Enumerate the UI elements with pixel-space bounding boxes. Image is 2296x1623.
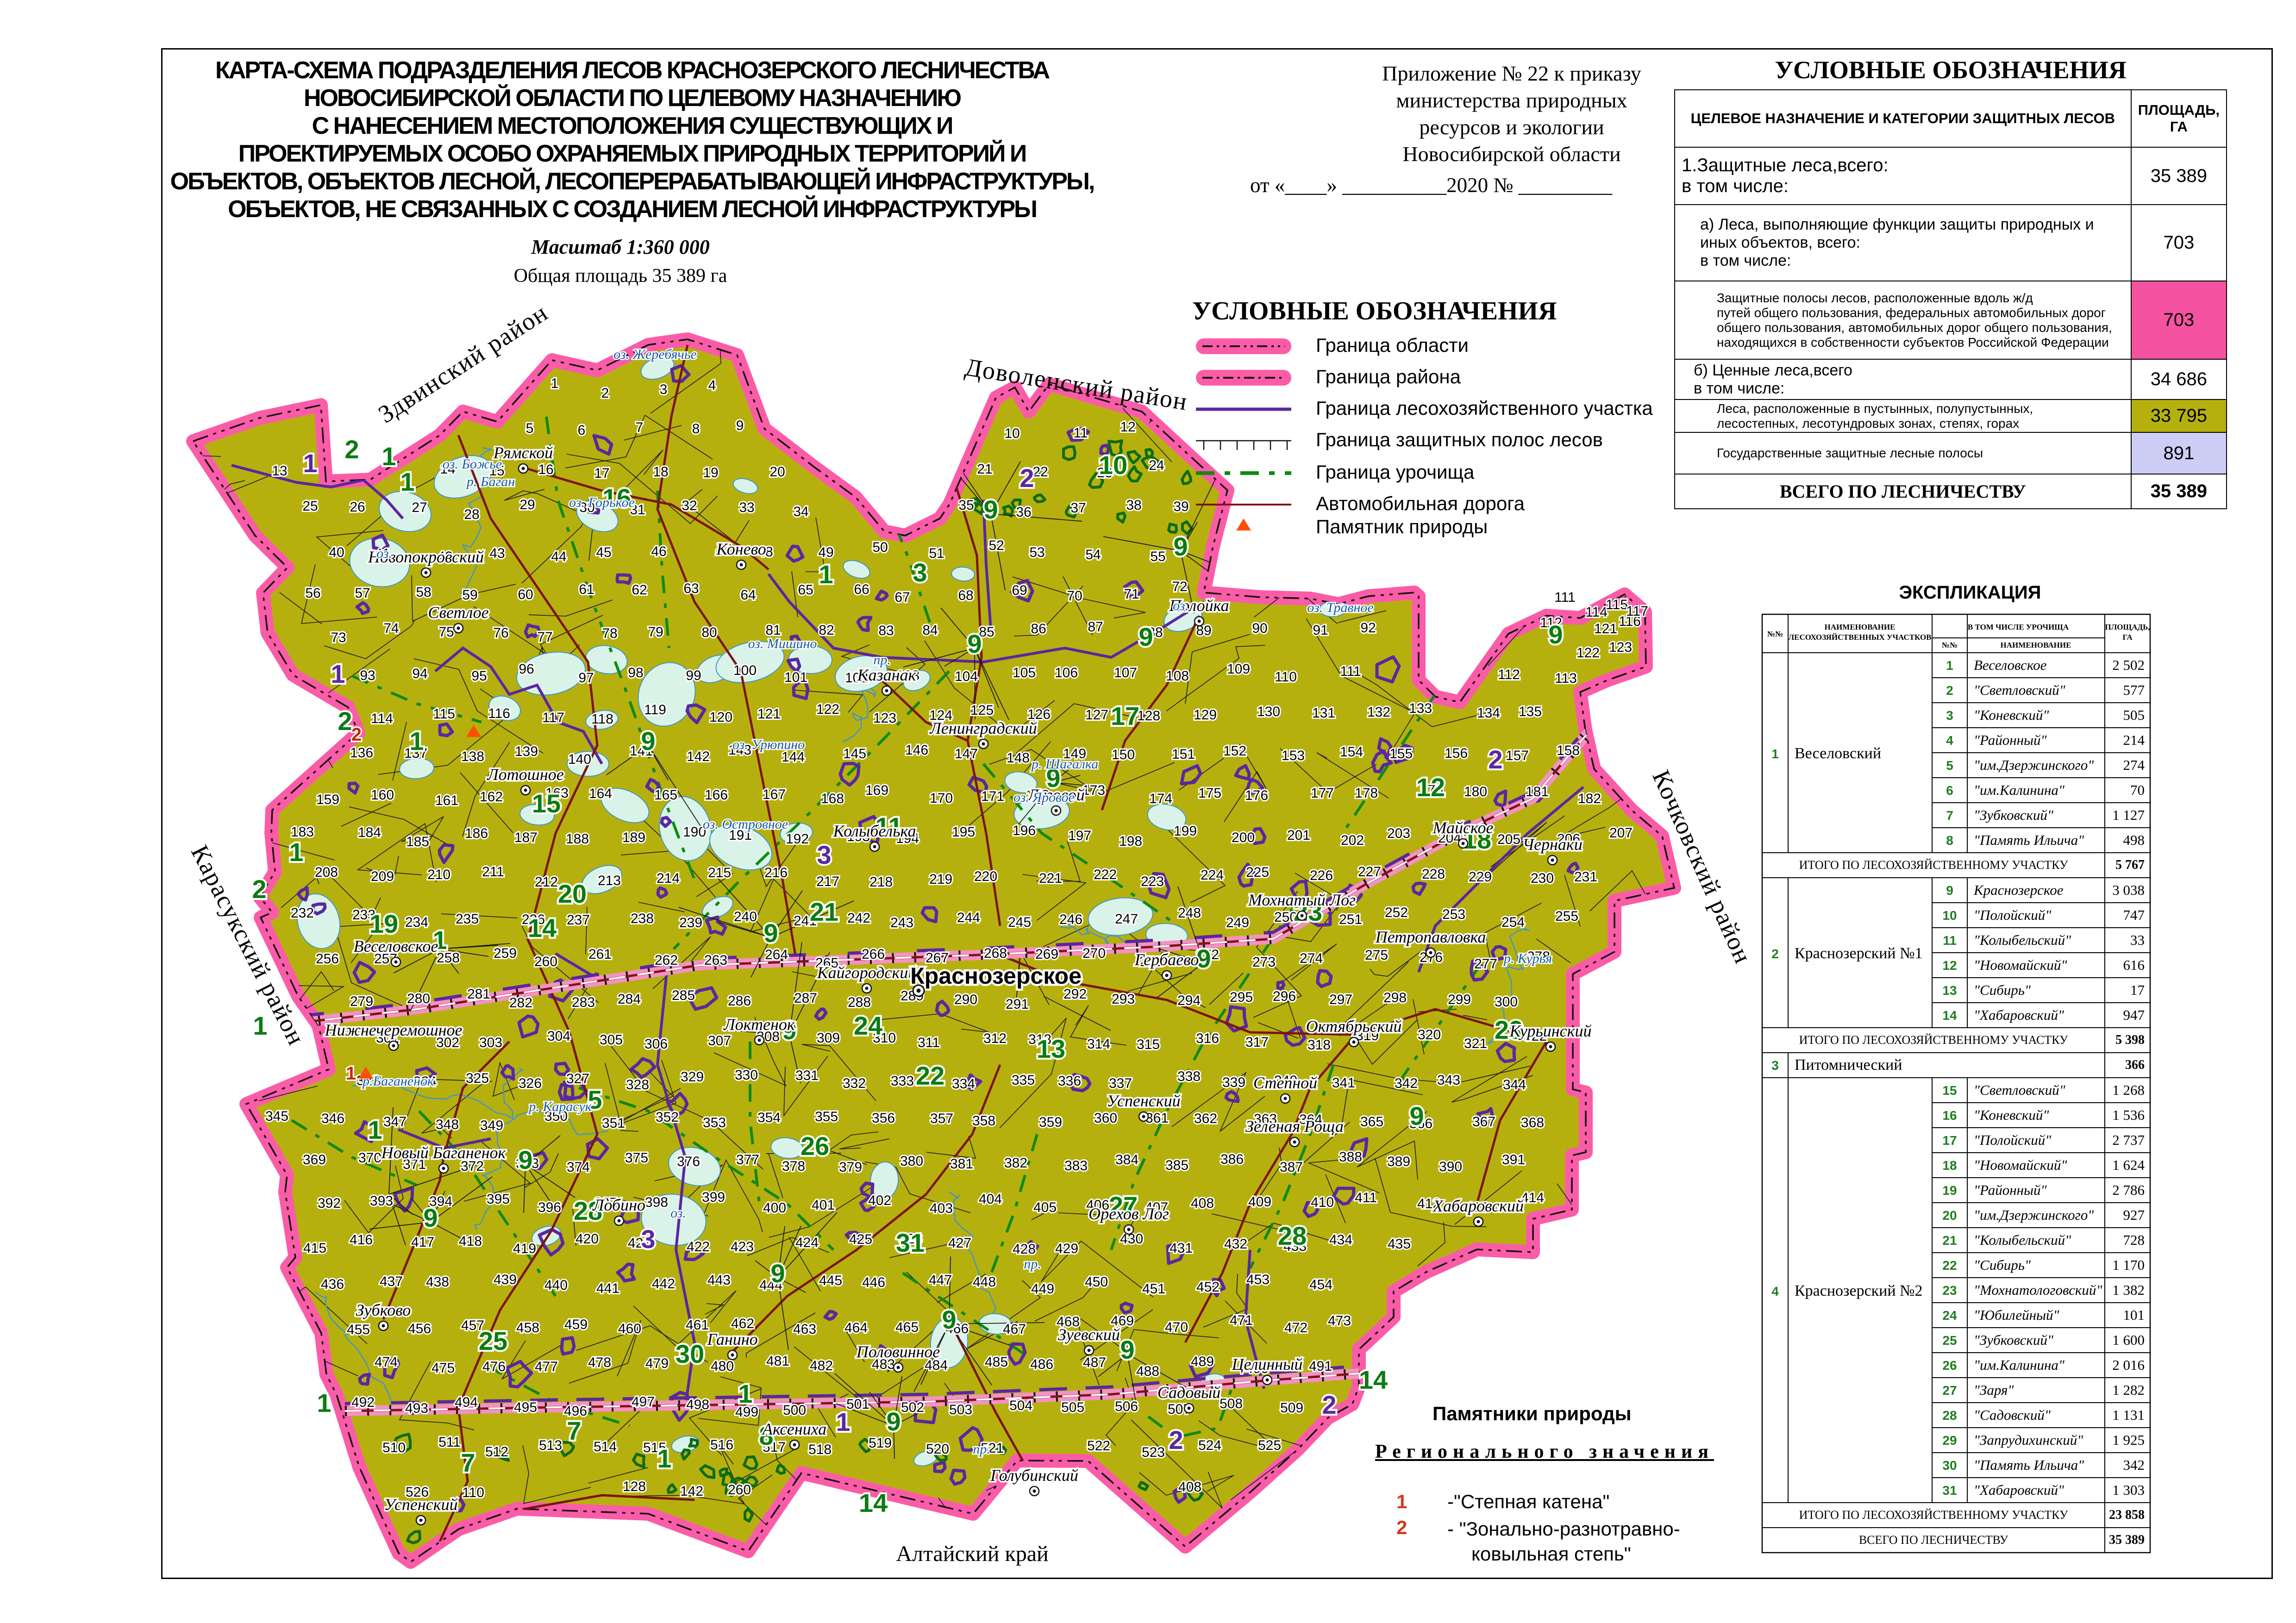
- svg-text:577: 577: [2123, 682, 2145, 698]
- svg-text:"Светловский": "Светловский": [1974, 682, 2066, 698]
- svg-text:"Светловский": "Светловский": [1974, 1082, 2066, 1098]
- svg-text:616: 616: [2123, 957, 2145, 973]
- svg-text:21: 21: [1942, 1233, 1957, 1248]
- svg-text:1 536: 1 536: [2112, 1107, 2145, 1123]
- svg-text:2: 2: [1771, 947, 1779, 961]
- svg-text:"Запрудихинский": "Запрудихинский": [1974, 1432, 2083, 1448]
- svg-text:"Зубковский": "Зубковский": [1974, 1332, 2054, 1348]
- svg-text:1: 1: [1946, 658, 1953, 673]
- svg-text:214: 214: [2123, 732, 2145, 748]
- svg-text:№№: №№: [1767, 630, 1783, 638]
- svg-text:2 502: 2 502: [2112, 657, 2145, 673]
- svg-text:1 127: 1 127: [2112, 807, 2145, 823]
- svg-text:30: 30: [1942, 1458, 1957, 1473]
- svg-text:"Новомайский": "Новомайский": [1974, 957, 2067, 973]
- svg-text:"Зубковский": "Зубковский": [1974, 807, 2054, 823]
- svg-text:"Районный": "Районный": [1974, 732, 2047, 748]
- svg-text:2 786: 2 786: [2112, 1182, 2145, 1198]
- svg-text:ЛЕСОХОЗЯЙСТВЕННЫХ УЧАСТКОВ: ЛЕСОХОЗЯЙСТВЕННЫХ УЧАСТКОВ: [1788, 633, 1931, 642]
- svg-text:Питомнический: Питомнический: [1795, 1056, 1902, 1074]
- svg-text:"Полойский": "Полойский": [1974, 1132, 2052, 1148]
- svg-text:1 268: 1 268: [2112, 1082, 2145, 1098]
- svg-text:Краснозерское: Краснозерское: [1973, 882, 2064, 898]
- svg-text:27: 27: [1942, 1383, 1957, 1398]
- svg-text:"Садовский": "Садовский": [1974, 1407, 2051, 1423]
- svg-text:31: 31: [1942, 1483, 1957, 1498]
- svg-text:"Коневский": "Коневский": [1974, 707, 2049, 723]
- svg-text:15: 15: [1942, 1083, 1957, 1098]
- svg-text:342: 342: [2123, 1457, 2145, 1473]
- svg-text:"Хабаровский": "Хабаровский": [1974, 1007, 2065, 1023]
- svg-text:14: 14: [1942, 1008, 1957, 1023]
- svg-text:"Юбилейный": "Юбилейный": [1974, 1307, 2060, 1323]
- svg-text:"Колыбельский": "Колыбельский": [1974, 932, 2071, 948]
- svg-text:1: 1: [1771, 747, 1779, 761]
- svg-text:"Новомайский": "Новомайский": [1974, 1157, 2067, 1173]
- svg-text:24: 24: [1942, 1308, 1957, 1323]
- svg-text:101: 101: [2123, 1307, 2145, 1323]
- svg-text:29: 29: [1942, 1433, 1957, 1448]
- svg-text:"Колыбельский": "Колыбельский": [1974, 1232, 2071, 1248]
- svg-text:№№: №№: [1942, 641, 1958, 649]
- svg-text:2 737: 2 737: [2112, 1132, 2145, 1148]
- svg-text:16: 16: [1942, 1108, 1957, 1123]
- svg-text:7: 7: [1946, 808, 1953, 823]
- svg-text:ИТОГО ПО ЛЕСОХОЗЯЙСТВЕННОМУ УЧ: ИТОГО ПО ЛЕСОХОЗЯЙСТВЕННОМУ УЧАСТКУ: [1799, 1033, 2068, 1047]
- svg-text:35 389: 35 389: [2109, 1533, 2145, 1547]
- svg-text:20: 20: [1942, 1208, 1957, 1223]
- svg-text:12: 12: [1942, 958, 1957, 973]
- svg-text:Краснозерский №1: Краснозерский №1: [1795, 945, 1923, 962]
- svg-text:1 600: 1 600: [2112, 1332, 2145, 1348]
- svg-text:1 303: 1 303: [2112, 1482, 2145, 1498]
- svg-text:Краснозерский №2: Краснозерский №2: [1795, 1282, 1923, 1299]
- svg-text:947: 947: [2123, 1007, 2145, 1023]
- svg-text:"Районный": "Районный": [1974, 1182, 2047, 1198]
- svg-text:ГА: ГА: [2122, 633, 2133, 642]
- svg-text:ИТОГО ПО ЛЕСОХОЗЯЙСТВЕННОМУ УЧ: ИТОГО ПО ЛЕСОХОЗЯЙСТВЕННОМУ УЧАСТКУ: [1799, 1508, 2068, 1522]
- svg-text:28: 28: [1942, 1408, 1957, 1423]
- svg-text:11: 11: [1943, 933, 1957, 948]
- svg-text:"Коневский": "Коневский": [1974, 1107, 2049, 1123]
- svg-text:33: 33: [2130, 932, 2145, 948]
- svg-text:23: 23: [1942, 1283, 1957, 1298]
- svg-text:26: 26: [1942, 1358, 1957, 1373]
- svg-text:Веселовское: Веселовское: [1974, 657, 2047, 673]
- svg-text:366: 366: [2125, 1058, 2145, 1072]
- svg-text:4: 4: [1771, 1284, 1779, 1298]
- svg-text:2: 2: [1946, 683, 1953, 698]
- svg-text:3: 3: [1771, 1058, 1779, 1073]
- svg-text:1 624: 1 624: [2112, 1157, 2145, 1173]
- svg-text:8: 8: [1946, 833, 1953, 848]
- svg-text:747: 747: [2123, 907, 2145, 923]
- svg-text:"Сибирь": "Сибирь": [1974, 1257, 2031, 1273]
- svg-text:ВСЕГО ПО ЛЕСНИЧЕСТВУ: ВСЕГО ПО ЛЕСНИЧЕСТВУ: [1859, 1533, 2008, 1547]
- svg-text:"Память Ильича": "Память Ильича": [1974, 1457, 2084, 1473]
- svg-text:"Хабаровский": "Хабаровский": [1974, 1482, 2065, 1498]
- svg-text:3: 3: [1946, 708, 1953, 723]
- svg-text:25: 25: [1942, 1333, 1957, 1348]
- svg-text:13: 13: [1942, 983, 1957, 998]
- svg-text:НАИМЕНОВАНИЕ: НАИМЕНОВАНИЕ: [2001, 641, 2071, 649]
- svg-text:1 131: 1 131: [2112, 1407, 2145, 1423]
- svg-text:"им.Калинина": "им.Калинина": [1974, 782, 2065, 798]
- svg-text:728: 728: [2123, 1232, 2145, 1248]
- svg-text:"Полойский": "Полойский": [1974, 907, 2052, 923]
- svg-text:В ТОМ ЧИСЛЕ УРОЧИЩА: В ТОМ ЧИСЛЕ УРОЧИЩА: [1968, 623, 2069, 631]
- svg-text:4: 4: [1946, 733, 1953, 748]
- svg-text:70: 70: [2130, 782, 2145, 798]
- svg-text:5: 5: [1946, 758, 1953, 773]
- svg-text:"им.Дзержинского": "им.Дзержинского": [1974, 757, 2094, 773]
- svg-text:1 925: 1 925: [2112, 1432, 2145, 1448]
- svg-text:ИТОГО ПО ЛЕСОХОЗЯЙСТВЕННОМУ УЧ: ИТОГО ПО ЛЕСОХОЗЯЙСТВЕННОМУ УЧАСТКУ: [1799, 858, 2068, 872]
- svg-text:498: 498: [2123, 832, 2145, 848]
- svg-text:3 038: 3 038: [2112, 882, 2145, 898]
- svg-text:"Память Ильича": "Память Ильича": [1974, 832, 2084, 848]
- svg-text:1 282: 1 282: [2112, 1382, 2145, 1398]
- svg-text:17: 17: [1942, 1133, 1957, 1148]
- svg-text:5 398: 5 398: [2115, 1033, 2145, 1047]
- svg-text:927: 927: [2123, 1207, 2145, 1223]
- svg-text:505: 505: [2123, 707, 2145, 723]
- svg-text:"им.Калинина": "им.Калинина": [1974, 1357, 2065, 1373]
- svg-text:274: 274: [2123, 757, 2145, 773]
- svg-text:"Заря": "Заря": [1974, 1382, 2014, 1398]
- svg-text:1 382: 1 382: [2112, 1282, 2145, 1298]
- svg-text:23 858: 23 858: [2109, 1508, 2145, 1522]
- svg-text:"Сибирь": "Сибирь": [1974, 982, 2031, 998]
- svg-text:Веселовский: Веселовский: [1795, 745, 1881, 762]
- svg-text:22: 22: [1942, 1258, 1957, 1273]
- svg-text:10: 10: [1942, 908, 1957, 923]
- svg-text:19: 19: [1942, 1183, 1957, 1198]
- svg-text:2 016: 2 016: [2112, 1357, 2145, 1373]
- svg-text:17: 17: [2130, 982, 2145, 998]
- svg-text:ПЛОЩАДЬ,: ПЛОЩАДЬ,: [2105, 623, 2150, 631]
- svg-text:НАИМЕНОВАНИЕ: НАИМЕНОВАНИЕ: [1825, 623, 1896, 631]
- svg-text:5 767: 5 767: [2115, 858, 2145, 872]
- svg-text:9: 9: [1946, 883, 1953, 898]
- svg-text:18: 18: [1942, 1158, 1957, 1173]
- svg-text:"Мохнатологовский": "Мохнатологовский": [1974, 1282, 2102, 1298]
- svg-text:6: 6: [1946, 783, 1953, 798]
- svg-text:"им.Дзержинского": "им.Дзержинского": [1974, 1207, 2094, 1223]
- svg-text:1 170: 1 170: [2112, 1257, 2145, 1273]
